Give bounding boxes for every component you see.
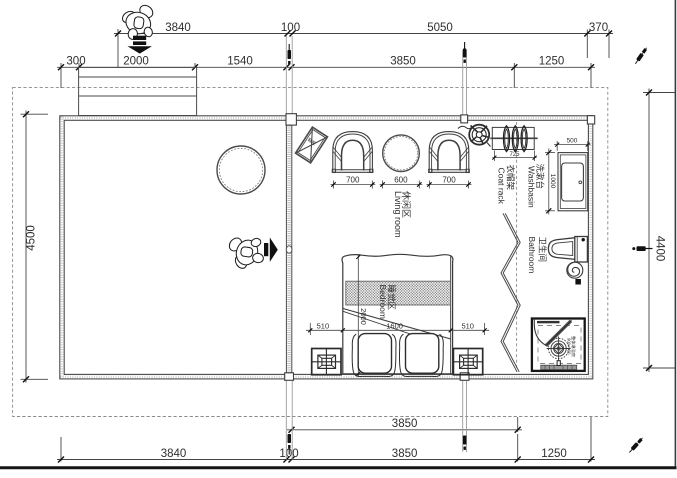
- svg-text:600: 600: [394, 176, 408, 185]
- svg-text:900×900: 900×900: [567, 338, 572, 355]
- svg-text:500: 500: [567, 138, 578, 145]
- svg-text:2000: 2000: [123, 56, 149, 68]
- svg-text:700: 700: [442, 176, 456, 185]
- svg-text:Coat rack: Coat rack: [497, 168, 507, 205]
- svg-text:Bathroom: Bathroom: [527, 237, 537, 274]
- svg-text:4500: 4500: [26, 225, 38, 251]
- svg-text:Washbasin: Washbasin: [527, 166, 537, 208]
- svg-text:510: 510: [461, 322, 474, 331]
- svg-text:510: 510: [317, 322, 330, 331]
- svg-text:300: 300: [66, 56, 85, 68]
- svg-text:700: 700: [346, 176, 360, 185]
- svg-text:1250: 1250: [541, 448, 567, 460]
- svg-text:Living room: Living room: [393, 191, 403, 238]
- svg-text:725: 725: [509, 152, 520, 158]
- svg-text:2000: 2000: [359, 308, 368, 325]
- svg-text:3840: 3840: [161, 448, 187, 460]
- svg-text:5050: 5050: [427, 22, 453, 34]
- svg-text:1540: 1540: [227, 56, 253, 68]
- svg-text:1250: 1250: [539, 56, 565, 68]
- svg-text:3850: 3850: [390, 56, 416, 68]
- svg-text:3850: 3850: [392, 448, 418, 460]
- svg-text:370: 370: [589, 22, 608, 34]
- svg-text:100: 100: [281, 22, 300, 34]
- svg-text:Bedroom: Bedroom: [378, 285, 388, 320]
- svg-text:1600: 1600: [386, 322, 403, 331]
- svg-text:3850: 3850: [392, 418, 418, 430]
- svg-text:1000: 1000: [549, 174, 556, 189]
- svg-text:3840: 3840: [165, 22, 191, 34]
- svg-text:卫生间: 卫生间: [538, 237, 548, 263]
- svg-text:4400: 4400: [654, 236, 666, 262]
